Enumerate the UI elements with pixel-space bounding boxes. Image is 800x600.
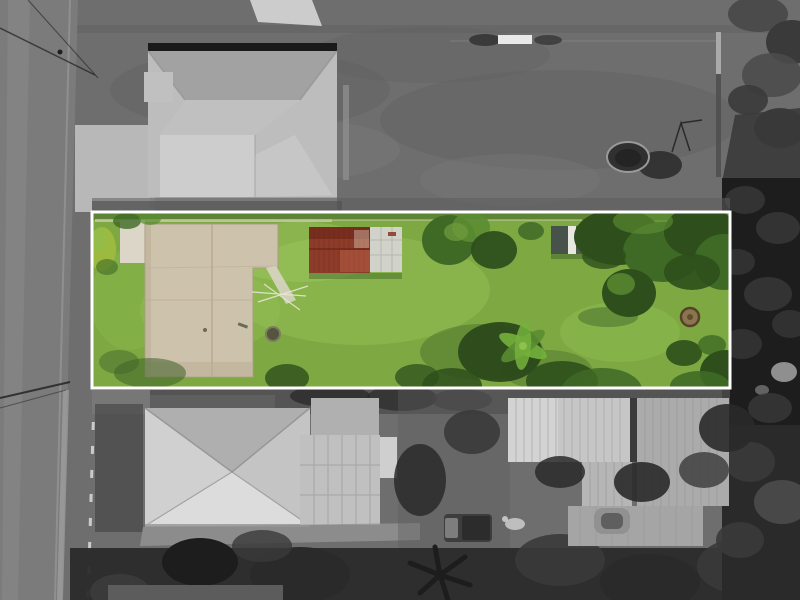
tree-overhang: [679, 452, 729, 488]
tree-shadow: [99, 350, 139, 374]
bush-base: [96, 259, 118, 275]
tree-blob: [162, 538, 238, 586]
hedge-blob: [139, 213, 161, 225]
tree-blob: [748, 393, 792, 423]
concrete-patch: [250, 0, 322, 26]
red-object-on-pad: [388, 232, 396, 236]
tree-blob: [534, 35, 562, 45]
tree-blob: [716, 522, 764, 558]
tree-green: [518, 222, 544, 240]
red-shed-worn-patch: [340, 250, 370, 272]
round-tree-highlight: [607, 273, 635, 295]
hedge-blob: [113, 213, 141, 229]
pale-tree-spot: [771, 362, 797, 382]
highlighted-property: [88, 206, 754, 412]
fire-pit: [266, 327, 280, 341]
white-trailer: [498, 35, 532, 44]
tree-green: [395, 364, 439, 390]
shed-gap-shadow: [630, 398, 637, 462]
tree-blob: [744, 277, 792, 311]
slab-debris: [203, 328, 207, 332]
bottom-roof-edge: [108, 585, 283, 600]
screenshot-root: [0, 0, 800, 600]
tree-blob: [728, 85, 768, 115]
field-track-line: [75, 25, 800, 33]
aerial-photo: [0, 0, 800, 600]
side-panel: [380, 437, 397, 478]
roof-ridge-shadow: [148, 43, 337, 51]
ground-below: [150, 395, 275, 409]
slab-shading: [145, 224, 151, 377]
tree-green: [666, 340, 702, 366]
tree-overhang: [699, 404, 755, 452]
tree-blob: [444, 410, 500, 454]
boat-interior: [601, 513, 623, 529]
tree-blob: [232, 530, 292, 562]
palm-shadow-gray: [394, 444, 446, 516]
side-path: [343, 85, 349, 180]
red-shed-worn-patch: [354, 230, 369, 248]
power-pole: [58, 50, 63, 55]
garage-roof: [300, 435, 380, 525]
front-lawn-dark: [95, 404, 143, 532]
tree-overhang: [535, 456, 585, 488]
tree-highlight: [444, 223, 468, 241]
tree-green: [471, 231, 517, 269]
tree-blob: [756, 212, 800, 244]
tree-green: [664, 254, 720, 290]
garage-upper-roof: [311, 398, 379, 435]
white-debris: [505, 518, 525, 530]
pool-water-dark: [615, 149, 641, 167]
tree-overhang: [614, 462, 670, 502]
tree-blob: [469, 34, 501, 46]
palm-crown: [519, 342, 527, 350]
tree-blob: [725, 186, 765, 214]
tree-green: [582, 243, 626, 269]
concrete-pad: [370, 227, 402, 272]
truck-tray: [462, 516, 490, 540]
shed-shadow: [309, 273, 402, 279]
strip-above-dark: [92, 201, 342, 212]
roof-wing: [144, 72, 173, 102]
white-debris: [502, 516, 508, 522]
field-mottle: [380, 70, 740, 170]
roof-lower-face: [160, 135, 255, 197]
shed-roof-c: [568, 506, 703, 546]
truck-cab: [445, 518, 458, 538]
boundary-fence-light: [716, 32, 721, 74]
tree-stump-center: [687, 314, 693, 320]
